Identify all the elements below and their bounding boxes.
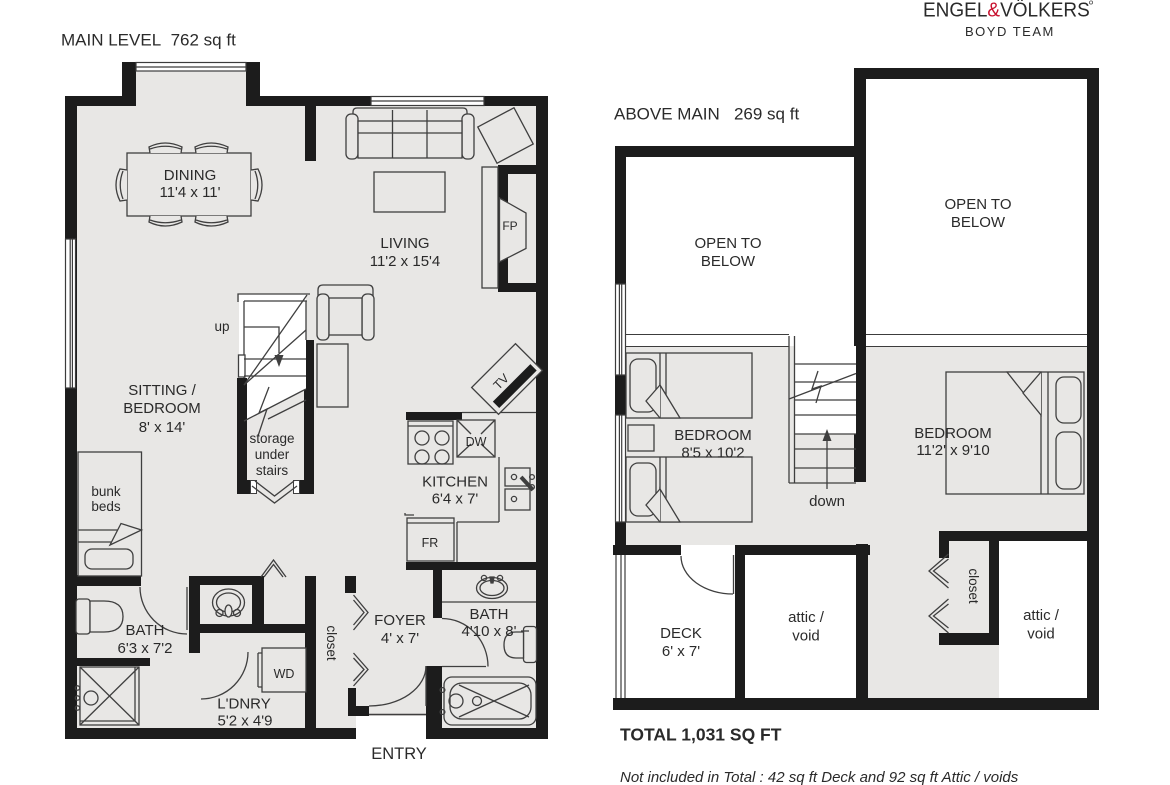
svg-text:6' x 7': 6' x 7' [662,643,700,660]
svg-text:BELOW: BELOW [951,214,1006,231]
svg-text:storage: storage [249,431,294,446]
svg-text:OPEN TO: OPEN TO [695,235,762,252]
svg-text:void: void [1027,626,1055,643]
svg-text:11'2 x 15'4: 11'2 x 15'4 [370,253,441,270]
svg-text:WD: WD [274,667,295,681]
svg-text:FR: FR [422,536,439,550]
svg-text:MAIN LEVEL 762 sq ft: MAIN LEVEL 762 sq ft [61,31,236,50]
svg-text:ENTRY: ENTRY [371,745,427,763]
svg-text:void: void [792,628,820,645]
svg-text:stairs: stairs [256,463,289,478]
svg-text:6'3 x 7'2: 6'3 x 7'2 [118,640,173,657]
svg-text:KITCHEN: KITCHEN [422,474,488,491]
svg-text:8' x 14': 8' x 14' [139,419,186,436]
svg-text:11'2' x 9'10: 11'2' x 9'10 [916,442,989,459]
svg-text:BATH: BATH [126,622,165,639]
svg-text:LIVING: LIVING [380,235,429,252]
svg-text:bunk: bunk [91,484,121,499]
svg-text:closet: closet [966,568,981,604]
svg-text:SITTING /: SITTING / [128,382,196,399]
svg-text:DINING: DINING [164,167,217,184]
svg-text:ENGEL&VÖLKERS: ENGEL&VÖLKERS [923,0,1090,22]
svg-text:OPEN TO: OPEN TO [945,196,1012,213]
svg-text:up: up [214,319,229,334]
svg-text:L'DNRY: L'DNRY [217,696,270,713]
svg-text:DECK: DECK [660,625,702,642]
svg-text:FP: FP [502,219,517,233]
svg-text:11'4 x 11': 11'4 x 11' [159,184,220,201]
svg-text:under: under [255,447,290,462]
svg-text:Not included in Total : 42 sq: Not included in Total : 42 sq ft Deck an… [620,769,1019,785]
svg-text:6'4 x 7': 6'4 x 7' [432,491,479,508]
svg-text:BOYD TEAM: BOYD TEAM [965,24,1055,39]
svg-text:DW: DW [466,435,487,449]
svg-text:attic /: attic / [1023,607,1060,624]
svg-text:BEDROOM: BEDROOM [914,425,992,442]
svg-text:BEDROOM: BEDROOM [674,427,752,444]
svg-text:closet: closet [324,625,339,661]
svg-text:5'2 x 4'9: 5'2 x 4'9 [218,713,273,730]
svg-text:beds: beds [91,499,121,514]
svg-text:BATH: BATH [470,606,509,623]
svg-text:FOYER: FOYER [374,612,426,629]
svg-text:TOTAL 1,031 SQ FT: TOTAL 1,031 SQ FT [620,725,782,745]
svg-text:8'5 x 10'2: 8'5 x 10'2 [681,445,744,462]
svg-text:ABOVE MAIN 269 sq ft: ABOVE MAIN 269 sq ft [614,105,799,124]
svg-text:BELOW: BELOW [701,253,756,270]
svg-text:down: down [809,493,845,510]
svg-text:attic /: attic / [788,609,825,626]
svg-text:4'10 x 8': 4'10 x 8' [462,623,517,640]
svg-text:BEDROOM: BEDROOM [123,400,201,417]
svg-text:4' x 7': 4' x 7' [381,630,419,647]
